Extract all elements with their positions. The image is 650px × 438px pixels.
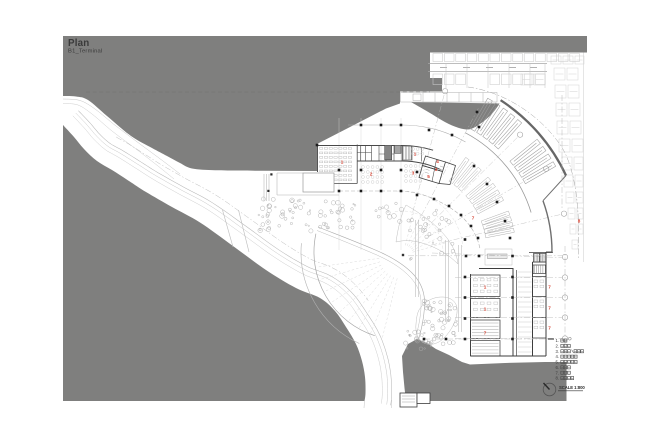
svg-text:1: 1 bbox=[341, 160, 344, 165]
svg-text:7.: 7. bbox=[556, 370, 560, 375]
svg-text:5: 5 bbox=[427, 174, 430, 179]
svg-text:1: 1 bbox=[484, 307, 487, 312]
svg-text:4: 4 bbox=[436, 159, 439, 164]
svg-text:7: 7 bbox=[548, 306, 551, 311]
svg-text:1: 1 bbox=[484, 285, 487, 290]
svg-text:Plan: Plan bbox=[68, 38, 90, 49]
svg-text:3: 3 bbox=[435, 167, 438, 172]
svg-text:3.: 3. bbox=[556, 349, 560, 354]
svg-text:8: 8 bbox=[578, 219, 581, 224]
svg-text:8.: 8. bbox=[556, 376, 560, 381]
svg-text:2: 2 bbox=[370, 172, 373, 177]
svg-text:4.: 4. bbox=[556, 354, 560, 359]
svg-text:6.: 6. bbox=[556, 365, 560, 370]
svg-text:7: 7 bbox=[484, 331, 487, 336]
svg-text:7: 7 bbox=[548, 326, 551, 331]
svg-text:7: 7 bbox=[548, 285, 551, 290]
svg-text:SCALE 1:800: SCALE 1:800 bbox=[559, 385, 585, 390]
svg-text:3: 3 bbox=[412, 171, 415, 176]
svg-text:5.: 5. bbox=[556, 360, 560, 365]
svg-text:B1_Terminal: B1_Terminal bbox=[68, 49, 102, 55]
svg-text:1.: 1. bbox=[556, 338, 560, 343]
svg-text:1: 1 bbox=[414, 152, 417, 157]
svg-text:2.: 2. bbox=[556, 344, 560, 349]
svg-text:7: 7 bbox=[472, 216, 475, 221]
